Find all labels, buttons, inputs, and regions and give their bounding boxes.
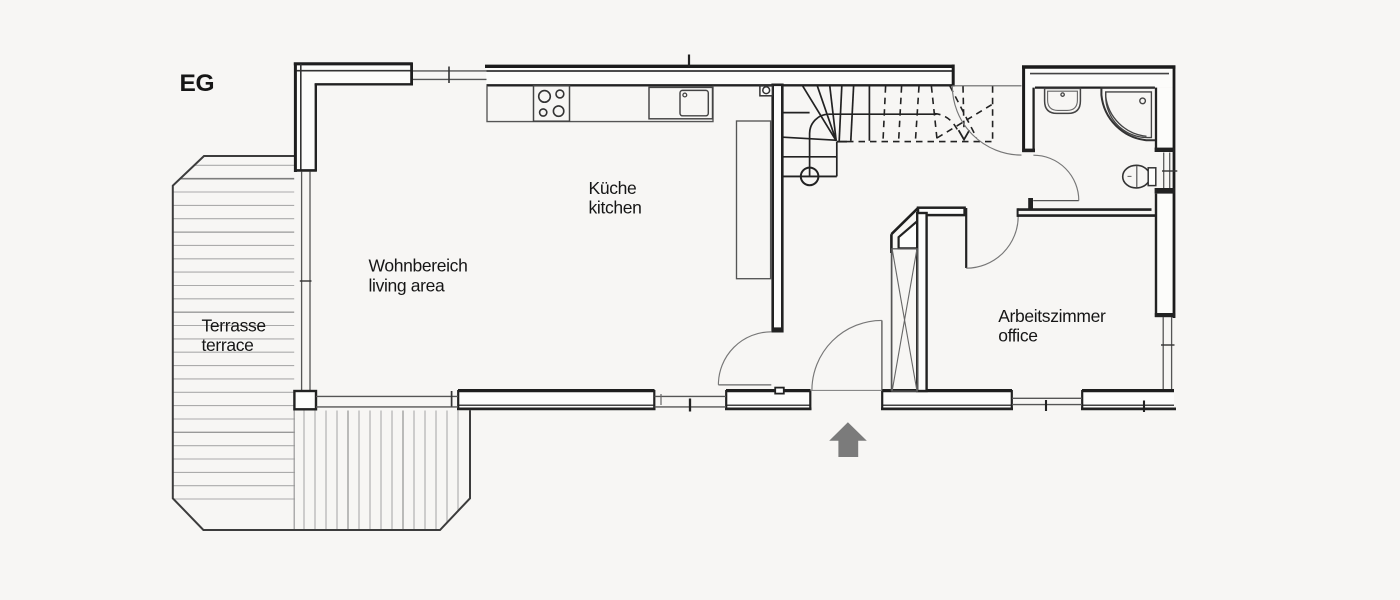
svg-text:Wohnbereich: Wohnbereich	[369, 256, 468, 276]
svg-text:kitchen: kitchen	[589, 197, 642, 217]
svg-text:office: office	[998, 325, 1037, 345]
svg-text:Arbeitszimmer: Arbeitszimmer	[998, 306, 1106, 326]
svg-text:Terrasse: Terrasse	[202, 316, 266, 336]
svg-text:terrace: terrace	[202, 335, 254, 355]
svg-text:living area: living area	[369, 275, 446, 295]
svg-text:EG: EG	[180, 70, 215, 97]
svg-text:Küche: Küche	[589, 178, 637, 198]
